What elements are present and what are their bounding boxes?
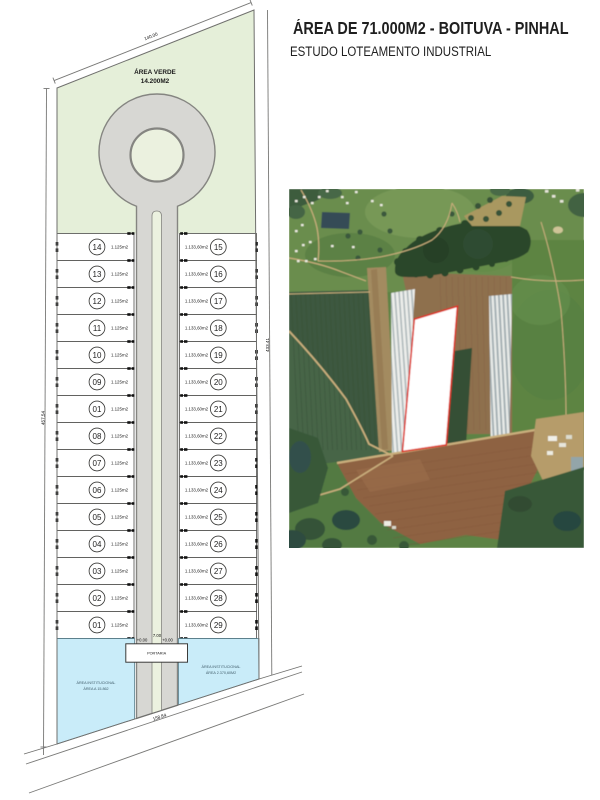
svg-text:1.125m2: 1.125m2	[111, 569, 129, 574]
svg-text:1.133,60m2: 1.133,60m2	[185, 272, 209, 277]
svg-text:08: 08	[93, 432, 102, 441]
svg-text:03: 03	[93, 567, 102, 576]
svg-text:1.133,60m2: 1.133,60m2	[185, 542, 209, 547]
svg-text:457.54: 457.54	[40, 411, 45, 425]
svg-text:01: 01	[93, 621, 102, 630]
svg-text:1.125m2: 1.125m2	[111, 353, 129, 358]
svg-text:14.200M2: 14.200M2	[141, 78, 170, 85]
svg-text:21: 21	[214, 405, 223, 414]
svg-text:29: 29	[214, 621, 223, 630]
svg-text:10: 10	[93, 351, 102, 360]
svg-text:1.125m2: 1.125m2	[111, 596, 129, 601]
svg-text:1.133,60m2: 1.133,60m2	[185, 461, 209, 466]
svg-text:1.133,60m2: 1.133,60m2	[185, 596, 209, 601]
svg-text:07: 07	[93, 459, 102, 468]
svg-text:7.00: 7.00	[153, 633, 162, 638]
svg-text:1.125m2: 1.125m2	[111, 245, 129, 250]
svg-text:ÁREA INSTITUCIONAL: ÁREA INSTITUCIONAL	[77, 681, 116, 685]
svg-text:1.125m2: 1.125m2	[111, 488, 129, 493]
svg-text:1.133,60m2: 1.133,60m2	[185, 434, 209, 439]
svg-text:1.133,60m2: 1.133,60m2	[185, 299, 209, 304]
svg-text:1.125m2: 1.125m2	[111, 515, 129, 520]
svg-text:1.133,60m2: 1.133,60m2	[185, 245, 209, 250]
svg-text:06: 06	[93, 486, 102, 495]
svg-text:433.41: 433.41	[265, 338, 270, 352]
svg-text:PORTARIA: PORTARIA	[147, 652, 167, 656]
svg-text:158.84: 158.84	[152, 712, 167, 721]
svg-text:11: 11	[93, 324, 102, 333]
svg-text:1.133,60m2: 1.133,60m2	[185, 326, 209, 331]
svg-text:18: 18	[214, 324, 223, 333]
svg-text:ÁREA 2.370,60M2: ÁREA 2.370,60M2	[206, 671, 236, 675]
svg-text:20: 20	[214, 378, 223, 387]
svg-text:17: 17	[214, 297, 223, 306]
svg-text:1.125m2: 1.125m2	[111, 434, 129, 439]
svg-text:ÁREA A 15.862: ÁREA A 15.862	[83, 687, 108, 691]
svg-text:1.133,60m2: 1.133,60m2	[185, 569, 209, 574]
svg-text:1.133,60m2: 1.133,60m2	[185, 407, 209, 412]
svg-text:1.133,60m2: 1.133,60m2	[185, 380, 209, 385]
svg-text:09: 09	[93, 378, 102, 387]
svg-text:+0.00: +0.00	[162, 638, 173, 643]
svg-text:02: 02	[93, 594, 102, 603]
svg-text:23: 23	[214, 459, 223, 468]
svg-text:1.125m2: 1.125m2	[111, 407, 129, 412]
svg-text:19: 19	[214, 351, 223, 360]
svg-text:15: 15	[214, 243, 223, 252]
svg-text:1.133,60m2: 1.133,60m2	[185, 623, 209, 628]
svg-text:1.133,60m2: 1.133,60m2	[185, 353, 209, 358]
svg-text:1.125m2: 1.125m2	[111, 380, 129, 385]
svg-text:27: 27	[214, 567, 223, 576]
svg-text:12: 12	[93, 297, 102, 306]
svg-text:28: 28	[214, 594, 223, 603]
svg-text:1.125m2: 1.125m2	[111, 326, 129, 331]
svg-text:26: 26	[214, 540, 223, 549]
svg-text:1.133,60m2: 1.133,60m2	[185, 515, 209, 520]
svg-text:ÁREA VERDE: ÁREA VERDE	[134, 67, 176, 76]
svg-text:1.125m2: 1.125m2	[111, 299, 129, 304]
svg-text:05: 05	[93, 513, 102, 522]
svg-text:04: 04	[93, 540, 102, 549]
svg-text:13: 13	[93, 270, 102, 279]
svg-text:01: 01	[93, 405, 102, 414]
svg-text:25: 25	[214, 513, 223, 522]
svg-text:14: 14	[93, 243, 102, 252]
svg-text:1.125m2: 1.125m2	[111, 272, 129, 277]
svg-text:22: 22	[214, 432, 223, 441]
svg-text:1.125m2: 1.125m2	[111, 542, 129, 547]
svg-text:+0.00: +0.00	[137, 638, 148, 643]
svg-text:16: 16	[214, 270, 223, 279]
svg-text:24: 24	[214, 486, 223, 495]
svg-text:1.133,60m2: 1.133,60m2	[185, 488, 209, 493]
svg-text:ÁREA INSTITUCIONAL: ÁREA INSTITUCIONAL	[202, 665, 241, 669]
svg-text:1.125m2: 1.125m2	[111, 461, 129, 466]
svg-text:1.125m2: 1.125m2	[111, 623, 129, 628]
